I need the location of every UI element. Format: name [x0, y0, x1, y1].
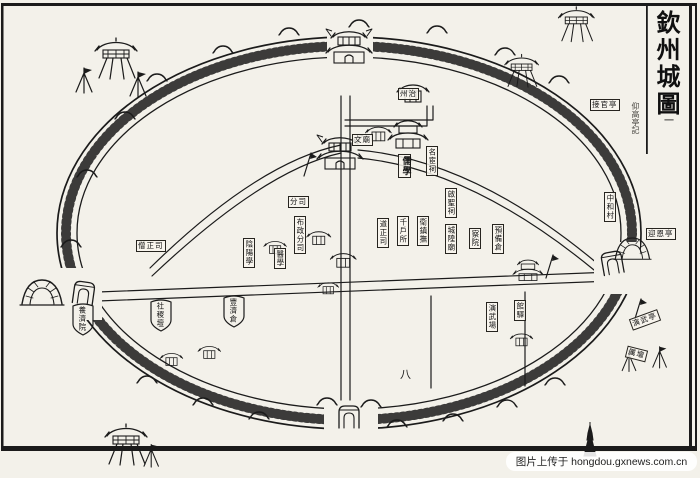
pavilion-icon — [105, 424, 147, 465]
building-label: 養濟院 — [77, 305, 87, 333]
title-strip-divider — [646, 4, 648, 154]
building-label: 布政分司 — [294, 216, 306, 254]
building-label: 千戶所 — [397, 216, 409, 246]
ring-road-east — [358, 150, 598, 270]
building-label: 察院 — [469, 228, 481, 249]
building-icon — [510, 334, 532, 346]
title-side-note: 仰高亭記 — [630, 102, 641, 134]
map-engraving: 八 — [0, 0, 700, 478]
school-building-icon — [388, 121, 428, 148]
building-icon — [160, 354, 182, 366]
building-icon — [307, 232, 331, 245]
streets — [66, 96, 612, 436]
place-label: 中和村 — [604, 192, 616, 222]
building-label: 醫學 — [274, 248, 286, 269]
city-wall — [57, 37, 641, 429]
qinzhou-city-map: 八 欽州城圖 一 仰高亭記 分司 布政分司 陰陽學 醫學 僧正司 文廟 儒學 名… — [0, 0, 700, 478]
building-label: 城隍廟 — [445, 224, 457, 254]
main-north-south-street — [341, 96, 350, 400]
flag-tripod-icon — [653, 347, 667, 368]
building-label: 陰陽學 — [243, 238, 255, 268]
pavilion-icon — [95, 38, 137, 79]
building-icon — [198, 347, 220, 359]
building-label: 衛鎮撫 — [417, 216, 429, 246]
map-title: 欽州城圖 — [654, 10, 678, 118]
building-label: 儒學 — [398, 154, 411, 178]
flag-tripod-icon — [76, 68, 92, 93]
watermark: 图片上传于 hongdou.gxnews.com.cn — [506, 452, 697, 471]
building-icon — [513, 260, 543, 280]
building-label: 文廟 — [352, 134, 373, 146]
pavilion-icon — [558, 7, 594, 42]
building-label: 名宦祠 — [426, 146, 438, 176]
wall-crenellation — [66, 46, 632, 420]
south-road-mark: 八 — [400, 368, 411, 381]
building-icon — [330, 254, 356, 268]
place-label: 接官亭 — [590, 99, 620, 111]
building-label: 豐濟倉 — [228, 297, 238, 325]
building-label: 州治 — [398, 88, 419, 100]
main-east-west-street — [98, 272, 612, 301]
page-frame — [1, 3, 697, 451]
building-label: 僧正司 — [136, 240, 166, 252]
pagoda-icon — [584, 422, 596, 456]
building-label: 分司 — [288, 196, 309, 208]
building-label: 館驛 — [514, 300, 526, 321]
building-label: 啟聖祠 — [445, 188, 457, 218]
building-label: 社稷壇 — [155, 301, 165, 329]
title-volume-mark: 一 — [664, 112, 674, 127]
building-label: 演武場 — [486, 302, 498, 332]
north-L-street — [345, 106, 433, 126]
block-streets — [431, 292, 525, 388]
building-label: 預備倉 — [492, 224, 504, 254]
building-label: 道正司 — [377, 218, 389, 248]
place-label: 迎恩亭 — [646, 228, 676, 240]
west-bridge-icon — [20, 280, 64, 305]
